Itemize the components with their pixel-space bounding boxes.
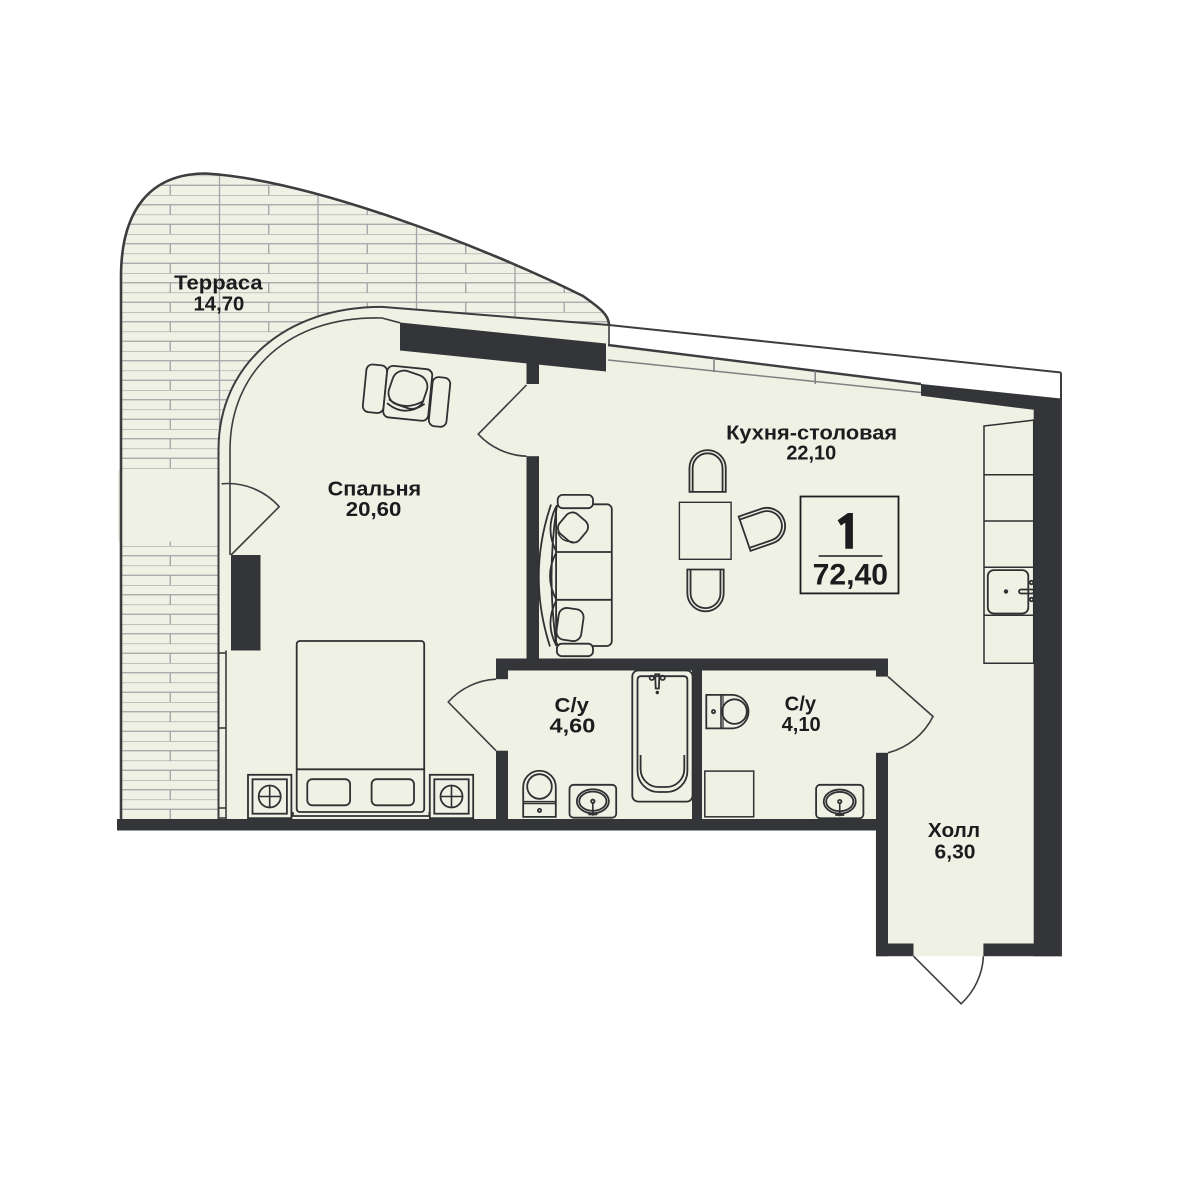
svg-text:6,30: 6,30 (935, 841, 976, 863)
svg-text:С/у: С/у (785, 694, 817, 716)
svg-text:20,60: 20,60 (346, 499, 402, 521)
svg-text:72,40: 72,40 (813, 558, 888, 591)
svg-text:22,10: 22,10 (786, 442, 836, 464)
svg-text:4,10: 4,10 (782, 714, 821, 736)
svg-text:4,60: 4,60 (550, 716, 596, 738)
svg-text:Кухня-столовая: Кухня-столовая (726, 423, 897, 445)
svg-text:Терраса: Терраса (174, 273, 263, 295)
svg-text:14,70: 14,70 (194, 293, 245, 315)
svg-text:Спальня: Спальня (328, 478, 422, 500)
svg-text:С/у: С/у (555, 695, 590, 717)
svg-text:Холл: Холл (928, 820, 980, 842)
